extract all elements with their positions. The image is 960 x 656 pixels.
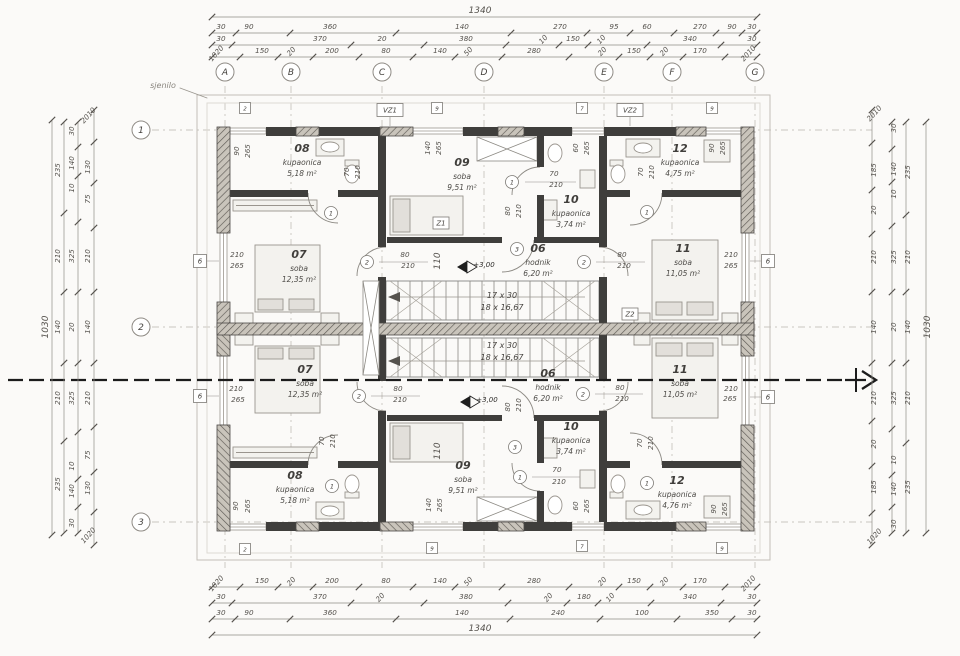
dim-label: 100 <box>635 608 649 617</box>
room-area: 5,18 m² <box>287 169 316 178</box>
dim-label: 210 <box>514 398 523 412</box>
dim-label: 50 <box>462 45 475 58</box>
level-label: +3,00 <box>476 396 498 404</box>
room-name: hodnik <box>525 258 551 267</box>
dim-label: 210 <box>53 391 62 405</box>
pillow <box>687 302 713 315</box>
dim-label: 150 <box>627 576 641 585</box>
tag-circle-label: 2 <box>582 258 586 266</box>
dim-label: 170 <box>693 46 707 55</box>
dim-label: 70 <box>342 167 351 177</box>
dim-label: 130 <box>83 160 92 174</box>
tag-circle-label: 1 <box>645 479 649 487</box>
stair-side-shaft <box>363 281 379 375</box>
stair-treads <box>398 281 590 320</box>
room-area: 4,76 m² <box>662 501 691 510</box>
dim-label: 60 <box>571 501 580 511</box>
tag-box-label: VZ2 <box>623 107 638 115</box>
dim-label: 265 <box>724 261 738 270</box>
dim-label: 240 <box>551 608 565 617</box>
furniture <box>233 139 738 326</box>
dim-label: 210 <box>230 250 244 259</box>
wall-hatch <box>498 127 524 136</box>
dim-label: 265 <box>718 141 727 155</box>
room-area: 9,51 m² <box>448 486 477 495</box>
dim-label: 210 <box>903 250 912 264</box>
dim-label: 210 <box>647 165 656 179</box>
dim-label: 1030 <box>41 315 51 338</box>
dim-label: 210 <box>53 249 62 263</box>
dim-label: 150 <box>627 46 641 55</box>
dim-label: 20 <box>658 45 671 58</box>
room-area: 4,75 m² <box>665 169 694 178</box>
dim-label: 70 <box>635 438 644 448</box>
dim-label: 2010 <box>865 103 884 123</box>
dim-label: 150 <box>566 34 580 43</box>
room-number: 12 <box>669 474 685 487</box>
sink <box>634 143 652 153</box>
dim-label: 70 <box>552 465 562 474</box>
room-number: 11 <box>675 242 690 255</box>
grid-bubble-label: 3 <box>138 518 144 528</box>
dim-label: 110 <box>433 252 443 269</box>
dim-label: 30 <box>747 608 757 617</box>
room-name: soba <box>671 379 689 388</box>
dim-label: 90 <box>232 146 241 156</box>
tag-circle-label: 1 <box>330 482 334 490</box>
dim-label: 1020 <box>207 43 226 63</box>
room-area: 11,05 m² <box>663 390 697 399</box>
dim-label: 20 <box>658 575 671 588</box>
dim-label: 210 <box>328 434 337 448</box>
stair-break-lines <box>390 281 595 320</box>
annotation-layer: ABCDEFG123134030903601402709560270903030… <box>41 6 933 638</box>
dim-label: 370 <box>313 34 327 43</box>
floor-plan-drawing: sjenilo ABCDEFG1231340309036014027095602… <box>0 0 960 656</box>
tag-box-label: 9 <box>430 547 434 553</box>
wall-hatch <box>296 127 319 136</box>
dim-label: 2010 <box>79 105 98 125</box>
dim-label: 370 <box>313 592 327 601</box>
dim-label: 70 <box>317 436 326 446</box>
tag-box-label: Z1 <box>435 220 445 228</box>
dim-label: 265 <box>230 261 244 270</box>
wall <box>599 136 607 247</box>
dim-label: 140 <box>53 320 62 334</box>
tag-box-label: Z2 <box>624 311 635 319</box>
dim-label: 140 <box>423 141 432 155</box>
dim-label: 10 <box>67 461 76 471</box>
room-area: 12,35 m² <box>282 275 316 284</box>
dim-label: 70 <box>549 169 559 178</box>
room-name: soba <box>674 258 692 267</box>
room-number: 09 <box>454 156 470 169</box>
dim-label: 325 <box>889 250 898 264</box>
tag-box-label: 7 <box>580 545 584 551</box>
room-number: 07 <box>291 248 307 261</box>
void-shaft <box>477 137 537 161</box>
dim-label: 1340 <box>469 6 492 16</box>
dim-label: 10 <box>595 33 608 46</box>
tag-box-label: 6 <box>198 258 203 266</box>
dim-label: 30 <box>747 22 757 31</box>
dim-label: 360 <box>323 608 337 617</box>
tag-circle-label: 1 <box>518 473 522 481</box>
floor-plan-page: sjenilo ABCDEFG1231340309036014027095602… <box>0 0 960 656</box>
level-flag <box>457 261 467 273</box>
dim-label: 30 <box>216 34 226 43</box>
wall <box>599 277 607 329</box>
room-name: soba <box>296 379 314 388</box>
dim-label: 210 <box>353 165 362 179</box>
tag-circle-label: 1 <box>329 209 333 217</box>
room-name: kupaonica <box>276 485 315 494</box>
tag-box-label: 2 <box>243 107 247 113</box>
room-area: 11,05 m² <box>666 269 700 278</box>
dim-label: 80 <box>615 383 625 392</box>
dim-label: 110 <box>433 442 443 459</box>
wall <box>378 136 386 247</box>
dim-label: 140 <box>869 320 878 334</box>
dim-label: 80 <box>393 384 403 393</box>
wall <box>217 190 308 197</box>
dim-label: 30 <box>747 592 757 601</box>
dim-label: 90 <box>231 501 240 511</box>
dim-label: 1020 <box>207 573 226 593</box>
dim-label: 210 <box>83 391 92 405</box>
dim-label: 130 <box>83 481 92 495</box>
dim-label: 210 <box>552 477 566 486</box>
dim-label: 90 <box>244 22 254 31</box>
room-name: soba <box>453 172 471 181</box>
dim-label: 265 <box>231 395 245 404</box>
grid-bubble-label: C <box>379 68 386 78</box>
dim-label: 80 <box>381 576 391 585</box>
dim-label: 80 <box>617 250 627 259</box>
dim-label: 235 <box>53 163 62 177</box>
tag-circle-label: 2 <box>581 390 585 398</box>
room-number: 12 <box>672 142 688 155</box>
dim-label: 80 <box>503 402 512 412</box>
dim-label: 210 <box>83 249 92 263</box>
dim-label: 210 <box>393 395 407 404</box>
dim-label: 270 <box>553 22 567 31</box>
wall <box>662 190 741 197</box>
tag-box-label: VZ1 <box>383 107 397 115</box>
dim-label: 325 <box>889 391 898 405</box>
dim-label: 150 <box>255 46 269 55</box>
dim-label: 140 <box>67 484 76 498</box>
dim-label: 265 <box>582 499 591 513</box>
dim-label: 265 <box>723 394 737 403</box>
dim-label: 75 <box>83 450 92 460</box>
wall-hatch <box>380 127 413 136</box>
tag-box-label: 9 <box>435 107 439 113</box>
dim-label: 210 <box>615 394 629 403</box>
dim-label: 30 <box>889 123 898 133</box>
stair-label: 18 x 16,67 <box>481 353 525 362</box>
sjenilo-leader-line <box>180 88 207 98</box>
dim-label: 140 <box>903 320 912 334</box>
dim-label: 340 <box>683 592 697 601</box>
dim-label: 70 <box>636 167 645 177</box>
dim-label: 20 <box>285 45 298 58</box>
dim-label: 1020 <box>79 525 98 545</box>
room-number: 06 <box>540 367 556 380</box>
stair-label: 18 x 16,67 <box>481 303 525 312</box>
dim-label: 210 <box>903 391 912 405</box>
tag-circle-label: 2 <box>357 392 361 400</box>
dim-label: 235 <box>53 477 62 491</box>
dim-label: 20 <box>596 575 609 588</box>
dim-label: 50 <box>462 575 475 588</box>
pier <box>741 127 754 233</box>
grid-bubble-label: A <box>221 68 228 78</box>
stair-label: 17 x 30 <box>487 291 517 300</box>
dim-label: 150 <box>255 576 269 585</box>
pillow <box>393 199 410 232</box>
dim-label: 210 <box>869 391 878 405</box>
dim-label: 280 <box>527 46 541 55</box>
dim-label: 1340 <box>469 624 492 634</box>
dim-label: 325 <box>67 391 76 405</box>
dim-label: 140 <box>424 498 433 512</box>
room-number: 08 <box>287 469 303 482</box>
sink <box>321 142 339 152</box>
dim-label: 10 <box>67 183 76 193</box>
dim-label: 90 <box>709 504 718 514</box>
wall <box>387 237 502 243</box>
room-name: kupaonica <box>552 436 591 445</box>
dim-label: 210 <box>724 384 738 393</box>
dim-label: 140 <box>455 22 469 31</box>
tag-circle-label: 3 <box>515 245 519 253</box>
dim-label: 20 <box>285 575 298 588</box>
dim-label: 20 <box>377 34 387 43</box>
dim-label: 235 <box>903 480 912 494</box>
room-area: 6,20 m² <box>523 269 552 278</box>
room-area: 6,20 m² <box>533 394 562 403</box>
room-area: 9,51 m² <box>447 183 476 192</box>
room-number: 11 <box>672 363 687 376</box>
dim-label: 75 <box>83 194 92 204</box>
room-name: soba <box>290 264 308 273</box>
wall <box>537 195 544 243</box>
pillow <box>289 299 314 310</box>
room-number: 10 <box>563 420 579 433</box>
room-number: 09 <box>455 459 471 472</box>
dim-label: 185 <box>869 163 878 177</box>
room-number: 10 <box>563 193 579 206</box>
sjenilo-label: sjenilo <box>150 81 176 90</box>
dim-label: 95 <box>609 22 619 31</box>
tag-box-label: 2 <box>243 548 247 554</box>
dim-label: 90 <box>244 608 254 617</box>
dim-label: 265 <box>434 141 443 155</box>
room-area: 12,35 m² <box>288 390 322 399</box>
dim-label: 1030 <box>923 315 933 338</box>
dim-label: 2010 <box>739 43 758 63</box>
grid-bubble-label: 1 <box>138 126 144 136</box>
pier <box>217 127 230 233</box>
dim-label: 350 <box>705 608 719 617</box>
stair-label: 17 x 30 <box>487 341 517 350</box>
dim-label: 380 <box>459 592 473 601</box>
tag-box-label: 9 <box>710 107 714 113</box>
dim-label: 140 <box>83 320 92 334</box>
dim-label: 140 <box>889 162 898 176</box>
dim-label: 30 <box>216 608 226 617</box>
dim-label: 80 <box>381 46 391 55</box>
dim-label: 30 <box>67 518 76 528</box>
dim-label: 2010 <box>739 573 758 593</box>
wall-hatch <box>676 127 706 136</box>
dim-label: 10 <box>537 33 550 46</box>
grid-bubble-label: F <box>669 68 675 78</box>
room-name: kupaonica <box>552 209 591 218</box>
dim-label: 10 <box>604 591 617 604</box>
tag-box-label: 9 <box>720 547 724 553</box>
dim-label: 265 <box>582 141 591 155</box>
tag-box-label: 7 <box>580 107 584 113</box>
room-number: 06 <box>530 242 546 255</box>
dim-label: 20 <box>869 205 878 215</box>
dim-label: 140 <box>433 576 447 585</box>
dim-label: 10 <box>889 455 898 465</box>
dim-label: 210 <box>229 384 243 393</box>
dim-label: 380 <box>459 34 473 43</box>
dim-label: 30 <box>889 519 898 529</box>
tag-box-label: 6 <box>766 394 771 402</box>
dim-label: 140 <box>67 156 76 170</box>
dim-label: 60 <box>642 22 652 31</box>
central-spine-wall <box>217 323 754 335</box>
wall <box>607 190 630 197</box>
dim-label: 90 <box>707 143 716 153</box>
washer <box>580 170 595 188</box>
dim-label: 265 <box>435 498 444 512</box>
pillow <box>656 302 682 315</box>
dim-label: 265 <box>243 144 252 158</box>
dim-label: 80 <box>400 250 410 259</box>
dim-label: 20 <box>869 439 878 449</box>
tag-box-label: 6 <box>766 258 771 266</box>
grid-bubble-label: D <box>481 68 488 78</box>
room-area: 3,74 m² <box>556 220 585 229</box>
dim-label: 10 <box>889 189 898 199</box>
dim-label: 210 <box>646 436 655 450</box>
tag-circle-label: 2 <box>365 258 369 266</box>
toilet <box>548 144 562 162</box>
dim-label: 210 <box>514 204 523 218</box>
dim-label: 210 <box>617 261 631 270</box>
grid-bubble-label: 2 <box>138 323 144 333</box>
dim-label: 170 <box>693 576 707 585</box>
room-area: 3,74 m² <box>556 447 585 456</box>
dim-label: 265 <box>243 499 252 513</box>
dim-label: 200 <box>325 46 339 55</box>
grid-bubble-label: E <box>601 68 607 78</box>
dim-label: 280 <box>527 576 541 585</box>
toilet <box>611 165 625 183</box>
stair-run <box>386 281 599 320</box>
dim-label: 90 <box>727 22 737 31</box>
grid-bubble-label: G <box>752 68 759 78</box>
dim-label: 185 <box>869 480 878 494</box>
dim-label: 210 <box>549 180 563 189</box>
pillow <box>258 299 283 310</box>
room-name: kupaonica <box>283 158 322 167</box>
tag-circle-label: 1 <box>645 208 649 216</box>
dim-label: 140 <box>455 608 469 617</box>
dim-label: 140 <box>889 482 898 496</box>
dim-label: 20 <box>542 591 555 604</box>
room-name: soba <box>454 475 472 484</box>
dim-label: 20 <box>374 591 387 604</box>
dim-label: 20 <box>889 322 898 332</box>
grid-bubble-label: B <box>288 68 294 78</box>
dim-label: 210 <box>401 261 415 270</box>
tag-box-label: 6 <box>198 393 203 401</box>
dim-label: 340 <box>683 34 697 43</box>
room-name: hodnik <box>535 383 561 392</box>
room-area: 5,18 m² <box>280 496 309 505</box>
level-flag <box>460 396 470 408</box>
dim-label: 200 <box>325 576 339 585</box>
dim-label: 30 <box>747 34 757 43</box>
dim-label: 140 <box>433 46 447 55</box>
dim-label: 360 <box>323 22 337 31</box>
dim-label: 235 <box>903 165 912 179</box>
dim-label: 180 <box>577 592 591 601</box>
dim-label: 210 <box>869 250 878 264</box>
dim-label: 20 <box>596 45 609 58</box>
dim-label: 265 <box>720 502 729 516</box>
dim-label: 325 <box>67 249 76 263</box>
dim-label: 30 <box>216 592 226 601</box>
wall <box>537 133 544 167</box>
tag-circle-label: 1 <box>510 178 514 186</box>
room-name: kupaonica <box>661 158 700 167</box>
stair-direction-arrow <box>388 292 400 302</box>
dim-label: 270 <box>693 22 707 31</box>
dim-label: 80 <box>503 206 512 216</box>
dim-label: 210 <box>724 250 738 259</box>
dim-label: 20 <box>67 322 76 332</box>
dim-label: 30 <box>216 22 226 31</box>
dim-label: 60 <box>571 143 580 153</box>
dim-label: 30 <box>67 126 76 136</box>
room-name: kupaonica <box>658 490 697 499</box>
level-label: +3,00 <box>473 261 495 269</box>
tag-circle-label: 3 <box>513 443 517 451</box>
room-number: 08 <box>294 142 310 155</box>
room-number: 07 <box>297 363 313 376</box>
